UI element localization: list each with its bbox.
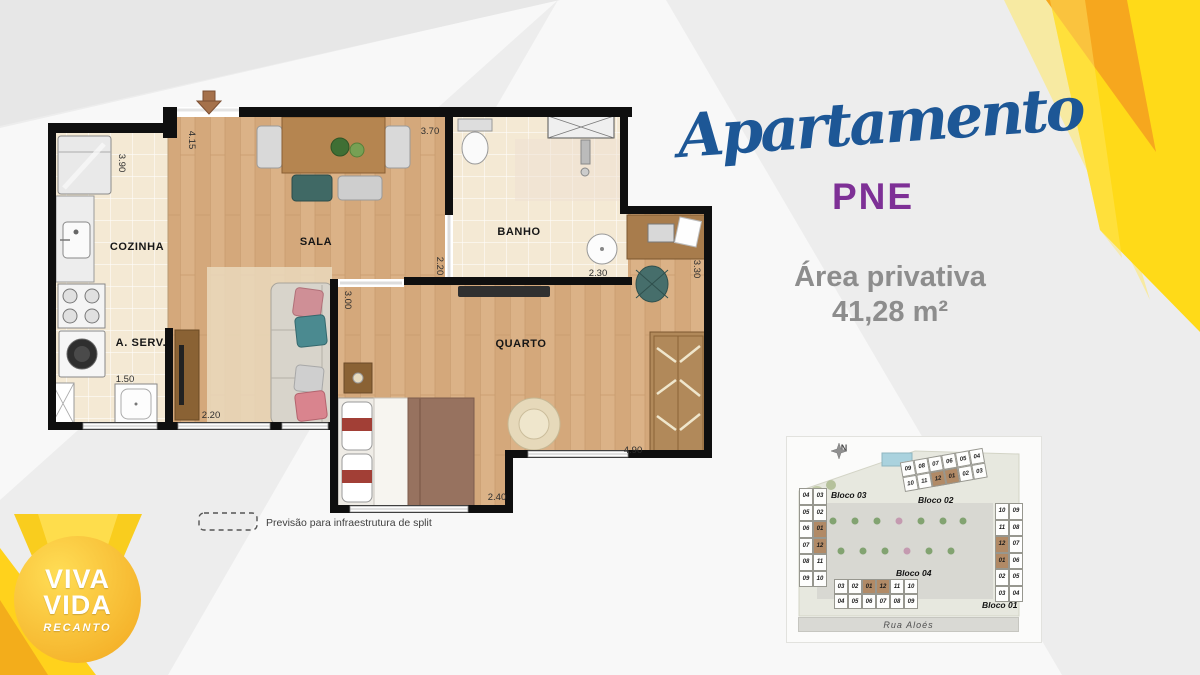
tv	[179, 345, 184, 405]
dim-3-90: 3.90	[116, 154, 127, 173]
compass: N	[831, 443, 857, 453]
dim-2-20-sala: 2.20	[202, 410, 221, 421]
street-bar: Rua Aloés	[798, 617, 1019, 632]
unit-01: 01	[813, 521, 827, 538]
block-grid-bloco-03: 040305020601071208110910	[799, 488, 827, 587]
shower-area	[515, 139, 625, 201]
dim-2-20-banho: 2.20	[434, 257, 445, 276]
compass-rose-icon	[831, 443, 847, 459]
dim-3-00: 3.00	[342, 291, 353, 310]
unit-type: PNE	[733, 176, 1013, 218]
block-label-bloco-02: Bloco 02	[918, 495, 953, 505]
unit-08: 08	[799, 554, 813, 571]
pillow	[294, 390, 327, 421]
laptop	[648, 224, 674, 242]
dim-1-50: 1.50	[116, 374, 135, 385]
dining-bench	[292, 175, 332, 201]
dim-2-40: 2.40	[488, 492, 507, 503]
label-banho: BANHO	[497, 226, 540, 238]
block-label-bloco-03: Bloco 03	[831, 490, 866, 500]
logo-line-1: VIVA	[45, 566, 110, 592]
shower-fixture	[581, 140, 590, 164]
pillow	[295, 315, 328, 348]
unit-01: 01	[862, 579, 876, 594]
area-label: Área privativa	[718, 260, 1062, 295]
unit-12: 12	[876, 579, 890, 594]
unit-10: 10	[813, 571, 827, 588]
legend-text: Previsão para infraestrutura de split	[266, 517, 432, 529]
block-label-bloco-01: Bloco 01	[982, 600, 1017, 610]
label-cozinha: COZINHA	[110, 241, 164, 253]
unit-02: 02	[813, 505, 827, 522]
window	[178, 423, 270, 429]
private-area: Área privativa 41,28 m²	[718, 260, 1062, 330]
unit-08: 08	[890, 594, 904, 609]
unit-02: 02	[848, 579, 862, 594]
block-grid-bloco-04: 030201121110040506070809	[834, 579, 918, 609]
unit-11: 11	[995, 520, 1009, 537]
dim-4-15: 4.15	[186, 131, 197, 150]
unit-07: 07	[799, 538, 813, 555]
pillow	[292, 287, 324, 319]
unit-06: 06	[1009, 553, 1023, 570]
dining-bench	[338, 176, 382, 200]
unit-05: 05	[799, 505, 813, 522]
tv-panel	[175, 330, 199, 420]
logo-line-2: VIDA	[43, 592, 112, 618]
unit-05: 05	[848, 594, 862, 609]
papers	[675, 217, 702, 247]
legend-swatch	[199, 513, 257, 530]
site-map: N 040305020601071208110910 0908070605041…	[786, 436, 1042, 643]
garden	[826, 480, 836, 490]
unit-07: 07	[1009, 536, 1023, 553]
unit-01: 01	[995, 553, 1009, 570]
dim-3-70: 3.70	[421, 126, 440, 137]
window	[282, 423, 328, 429]
dining-chair	[257, 126, 282, 168]
unit-03: 03	[813, 488, 827, 505]
unit-09: 09	[904, 594, 918, 609]
unit-04: 04	[799, 488, 813, 505]
pillow	[294, 365, 325, 394]
unit-07: 07	[876, 594, 890, 609]
unit-05: 05	[1009, 569, 1023, 586]
dim-3-30: 3.30	[691, 260, 702, 279]
block-grid-bloco-01: 100911081207010602050304	[995, 503, 1023, 602]
legend: Previsão para infraestrutura de split	[199, 513, 432, 530]
unit-12: 12	[813, 538, 827, 555]
unit-08: 08	[1009, 520, 1023, 537]
label-sala: SALA	[300, 236, 332, 248]
window	[83, 423, 157, 429]
unit-06: 06	[799, 521, 813, 538]
logo-line-3: RECANTO	[43, 622, 111, 634]
unit-04: 04	[834, 594, 848, 609]
dim-4-90: 4.90	[624, 445, 643, 456]
marketing-slide: COZINHA A. SERV. SALA BANHO QUARTO 3.90 …	[0, 0, 1200, 675]
lamp	[353, 373, 363, 383]
window	[528, 451, 628, 457]
unit-06: 06	[862, 594, 876, 609]
unit-12: 12	[995, 536, 1009, 553]
block-label-bloco-04: Bloco 04	[896, 568, 931, 578]
bedroom-tv-panel	[458, 286, 550, 297]
window	[350, 506, 468, 512]
unit-03: 03	[834, 579, 848, 594]
unit-02: 02	[995, 569, 1009, 586]
unit-11: 11	[890, 579, 904, 594]
dim-2-30: 2.30	[589, 268, 608, 279]
viva-vida-logo: VIVA VIDA RECANTO	[14, 536, 141, 663]
unit-10: 10	[995, 503, 1009, 520]
plant	[331, 138, 349, 156]
unit-09: 09	[1009, 503, 1023, 520]
unit-09: 09	[799, 571, 813, 588]
area-value: 41,28 m²	[718, 295, 1062, 330]
dining-chair	[385, 126, 410, 168]
plant	[350, 143, 364, 157]
unit-11: 11	[813, 554, 827, 571]
label-quarto: QUARTO	[495, 338, 546, 350]
unit-03: 03	[971, 463, 987, 480]
toilet	[458, 119, 492, 131]
label-aserv: A. SERV.	[116, 337, 167, 349]
unit-10: 10	[904, 579, 918, 594]
